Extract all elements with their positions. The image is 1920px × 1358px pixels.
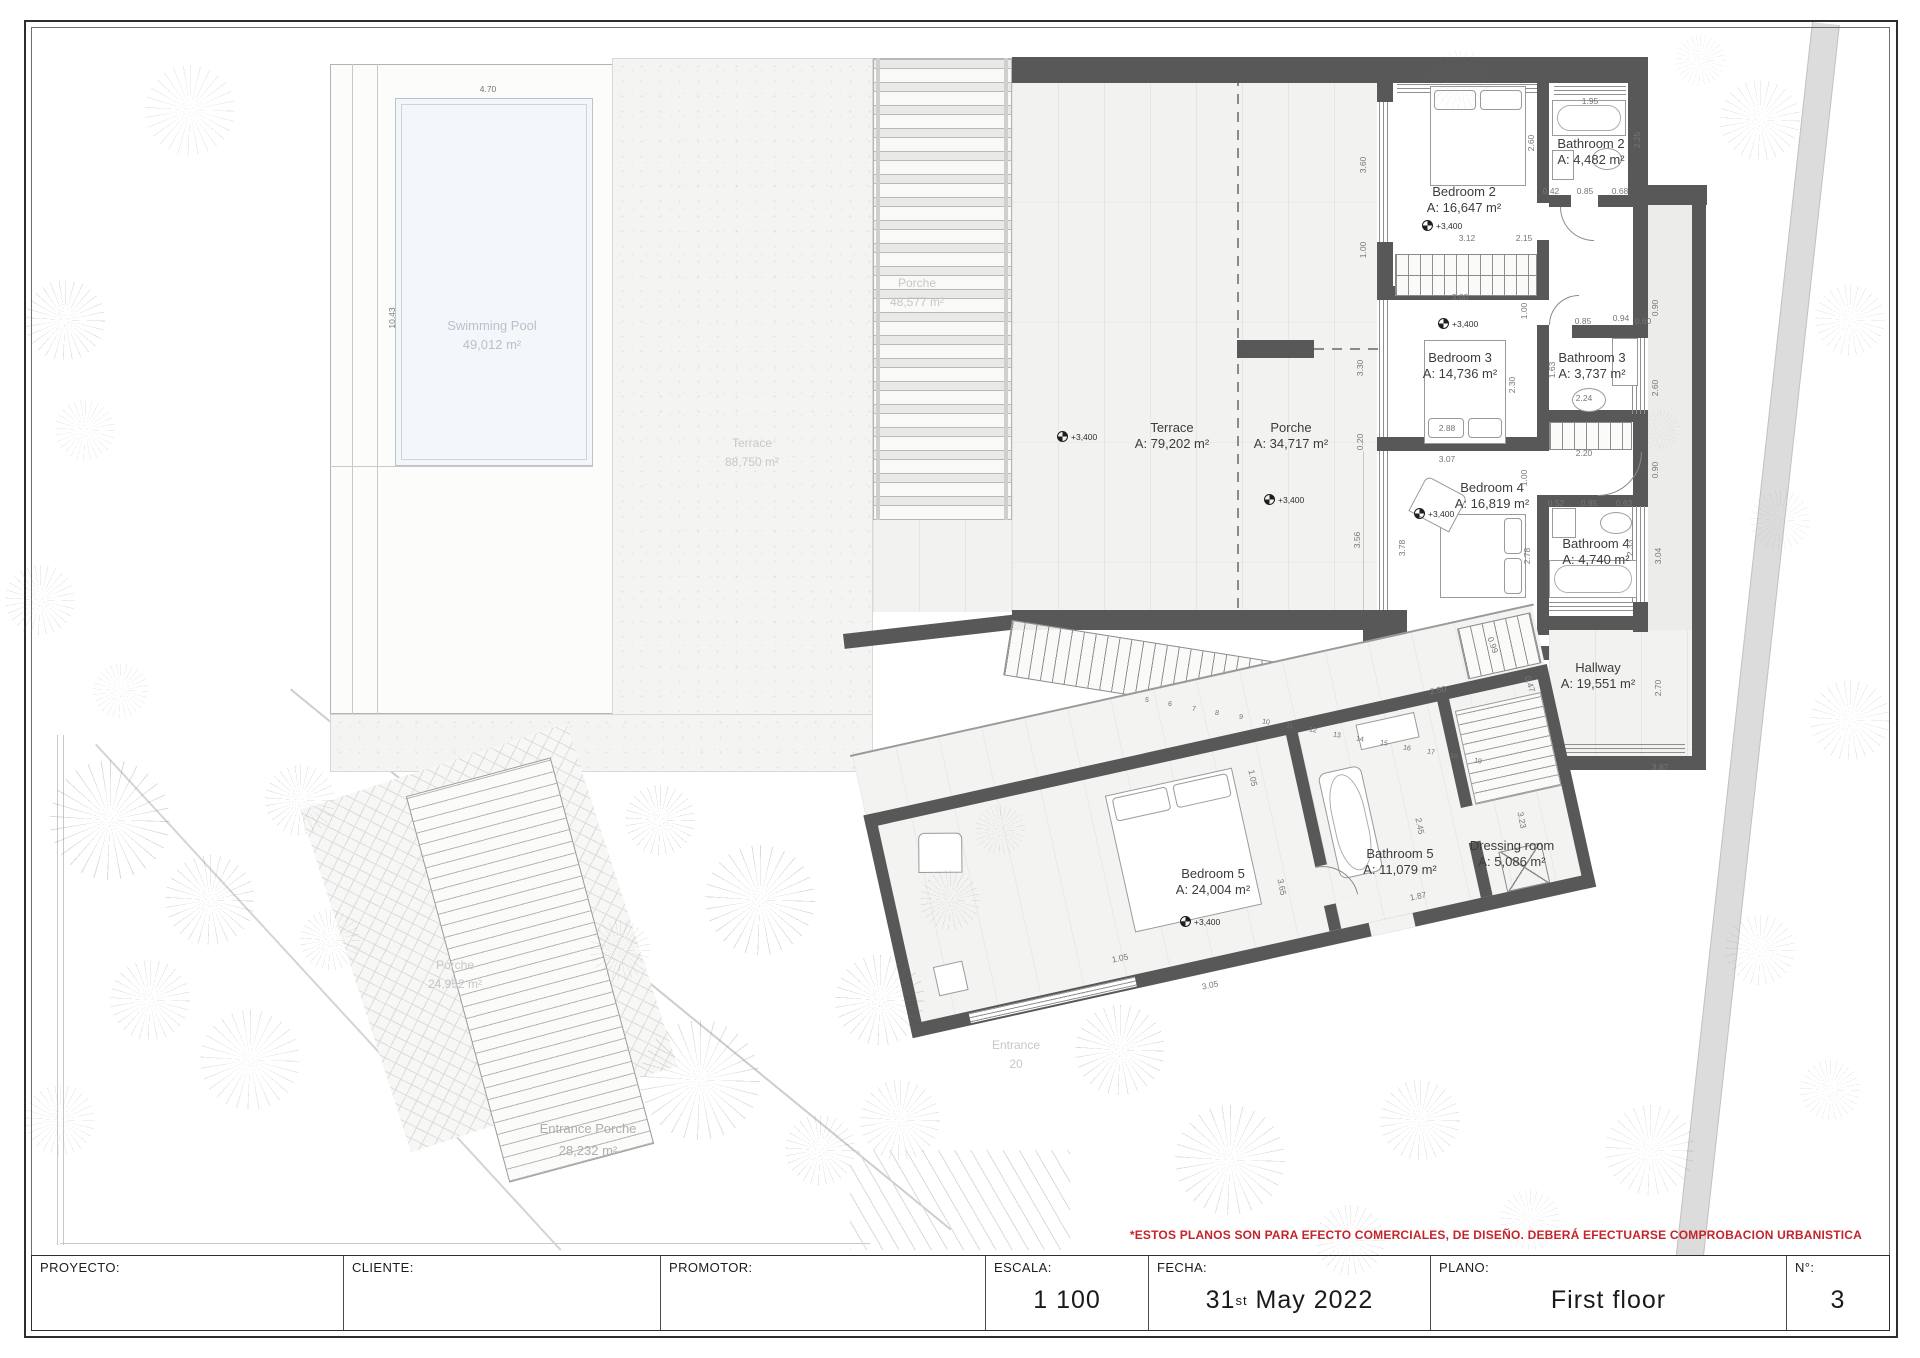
- dimension-label: 1.00: [1519, 303, 1529, 320]
- tree-icon: [110, 960, 190, 1040]
- tree-icon: [1720, 80, 1800, 160]
- tree-icon: [1675, 35, 1725, 85]
- room-label: Bathroom 3A: 3,737 m²: [1517, 350, 1667, 382]
- dimension-label: 0.20: [1355, 434, 1365, 451]
- dimension-label: 4.70: [480, 84, 497, 94]
- tree-icon: [50, 760, 170, 880]
- tree-icon: [1815, 285, 1885, 355]
- stair-number: 12: [1309, 726, 1318, 734]
- dimension-label: 3.30: [1355, 360, 1365, 377]
- level-marker: +3,400: [1057, 431, 1097, 442]
- dimension-label: 10.43: [387, 307, 397, 328]
- level-marker: +3,400: [1180, 916, 1220, 927]
- area-label-faint: Entrance20: [931, 1036, 1101, 1074]
- dimension-label: 2.30: [1507, 377, 1517, 394]
- dimension-label: 0.42: [1543, 186, 1560, 196]
- plano-label: PLANO:: [1439, 1260, 1778, 1275]
- dimension-label: 2.20: [1576, 448, 1593, 458]
- titleblock-promotor: PROMOTOR:: [661, 1256, 986, 1330]
- tree-icon: [1800, 1060, 1860, 1120]
- titleblock-escala: ESCALA: 1 100: [986, 1256, 1149, 1330]
- fecha-label: FECHA:: [1157, 1260, 1422, 1275]
- tree-icon: [1315, 1205, 1385, 1275]
- tree-icon: [25, 280, 105, 360]
- dimension-label: 0.94: [1613, 313, 1630, 323]
- level-marker: +3,400: [1264, 494, 1304, 505]
- tree-icon: [1750, 490, 1810, 550]
- tree-icon: [200, 1010, 300, 1110]
- dimension-label: 3.04: [1653, 548, 1663, 565]
- stair-number: 13: [1333, 731, 1342, 739]
- title-block: PROYECTO: CLIENTE: PROMOTOR: ESCALA: 1 1…: [31, 1255, 1890, 1331]
- tree-icon: [705, 845, 815, 955]
- stair-number: 10: [1262, 718, 1271, 726]
- tree-icon: [1640, 410, 1680, 450]
- stair-number: 16: [1403, 744, 1412, 752]
- dimension-label: 2.60: [1526, 135, 1536, 152]
- tree-icon: [165, 855, 255, 945]
- titleblock-proyecto: PROYECTO:: [32, 1256, 344, 1330]
- tree-icon: [920, 870, 980, 930]
- cliente-label: CLIENTE:: [352, 1260, 652, 1275]
- level-marker: +3,400: [1422, 220, 1462, 231]
- tree-icon: [25, 1085, 95, 1155]
- dimension-label: 0.90: [1650, 300, 1660, 317]
- dimension-label: 1.00: [1519, 470, 1529, 487]
- tree-icon: [1175, 1105, 1285, 1215]
- area-label-faint: Entrance Porche28,232 m²: [503, 1118, 673, 1162]
- room-label: Bathroom 4A: 4,740 m²: [1521, 536, 1671, 568]
- tree-icon: [1810, 680, 1890, 760]
- tree-icon: [975, 805, 1025, 855]
- dimension-label: 2.70: [1653, 680, 1663, 697]
- disclaimer-text: *ESTOS PLANOS SON PARA EFECTO COMERCIALE…: [0, 1228, 1862, 1242]
- tree-icon: [1430, 50, 1490, 110]
- dimension-label: 1.00: [1358, 242, 1368, 259]
- dimension-label: 1.63: [1547, 362, 1557, 379]
- dimension-label: 0.85: [1577, 186, 1594, 196]
- titleblock-numero: N°: 3: [1787, 1256, 1889, 1330]
- tree-icon: [860, 1080, 940, 1160]
- tree-icon: [590, 920, 650, 980]
- dimension-label: 3.12: [1459, 233, 1476, 243]
- stair-number: 19: [1474, 757, 1483, 765]
- tree-icon: [93, 663, 148, 718]
- dimension-label: 3.87: [1652, 762, 1669, 772]
- dimension-label: 2.25: [1632, 132, 1642, 149]
- numero-value: 3: [1795, 1275, 1881, 1326]
- dimension-label: 3.07: [1439, 454, 1456, 464]
- dimension-label: 0.85: [1581, 498, 1598, 508]
- room-label: Dressing roomA: 5,086 m²: [1437, 838, 1587, 870]
- plano-value: First floor: [1439, 1275, 1778, 1326]
- tree-icon: [1500, 1190, 1560, 1250]
- level-target-icon: [1057, 431, 1068, 442]
- room-label: Bedroom 5A: 24,004 m²: [1138, 866, 1288, 898]
- room-label: Bathroom 2A: 4,482 m²: [1516, 136, 1666, 168]
- dimension-label: 2.24: [1576, 393, 1593, 403]
- drawing-sheet: *ESTOS PLANOS SON PARA EFECTO COMERCIALE…: [0, 0, 1920, 1358]
- level-target-icon: [1438, 318, 1449, 329]
- dimension-label: 3.60: [1358, 157, 1368, 174]
- room-label: PorcheA: 34,717 m²: [1216, 420, 1366, 452]
- stair-number: 18: [1450, 752, 1459, 760]
- titleblock-fecha: FECHA: 31st May 2022: [1149, 1256, 1431, 1330]
- room-label: HallwayA: 19,551 m²: [1523, 660, 1673, 692]
- titleblock-cliente: CLIENTE:: [344, 1256, 661, 1330]
- escala-label: ESCALA:: [994, 1260, 1140, 1275]
- level-target-icon: [1414, 508, 1425, 519]
- numero-label: N°:: [1795, 1260, 1881, 1275]
- proyecto-label: PROYECTO:: [40, 1260, 335, 1275]
- dimension-label: 2.88: [1439, 423, 1456, 433]
- dimension-label: 3.00: [1452, 292, 1469, 302]
- dimension-label: 0.60: [1635, 316, 1652, 326]
- tree-icon: [625, 785, 695, 855]
- stair-number: 11: [1285, 722, 1293, 730]
- dimension-label: 0.63: [1616, 498, 1633, 508]
- area-label-faint: Porche24,952 m²: [370, 956, 540, 994]
- tree-icon: [1605, 1105, 1695, 1195]
- tree-icon: [5, 565, 75, 635]
- tree-icon: [785, 1115, 855, 1185]
- stair-number: 14: [1356, 735, 1365, 743]
- dimension-label: 0.85: [1575, 316, 1592, 326]
- tree-icon: [300, 910, 360, 970]
- tree-icon: [1380, 1080, 1460, 1160]
- dimension-label: 2.78: [1522, 548, 1532, 565]
- dimension-label: 1.95: [1582, 96, 1599, 106]
- promotor-label: PROMOTOR:: [669, 1260, 977, 1275]
- dimension-label: 2.60: [1650, 380, 1660, 397]
- dimension-label: 0.52: [1548, 498, 1565, 508]
- level-target-icon: [1180, 916, 1191, 927]
- tree-icon: [835, 955, 925, 1045]
- dimension-label: 0.90: [1650, 462, 1660, 479]
- area-label-faint: Porche48,577 m²: [832, 274, 1002, 312]
- level-marker: +3,400: [1438, 318, 1478, 329]
- stair-number: 17: [1427, 748, 1436, 756]
- tree-icon: [1725, 915, 1795, 985]
- tree-icon: [265, 765, 335, 835]
- tree-icon: [55, 400, 115, 460]
- room-label: Bedroom 2A: 16,647 m²: [1389, 184, 1539, 216]
- titleblock-plano: PLANO: First floor: [1431, 1256, 1787, 1330]
- area-label-faint: Terrace88,750 m²: [667, 434, 837, 472]
- stair-number: 15: [1380, 739, 1389, 747]
- tree-icon: [145, 65, 235, 155]
- dimension-label: 2.33: [1625, 540, 1635, 557]
- area-label-faint: Swimming Pool49,012 m²: [407, 316, 577, 354]
- dimension-label: 0.68: [1612, 186, 1629, 196]
- level-marker: +3,400: [1414, 508, 1454, 519]
- dimension-label: 3.78: [1397, 540, 1407, 557]
- level-target-icon: [1422, 220, 1433, 231]
- fecha-value: 31st May 2022: [1157, 1275, 1422, 1326]
- level-target-icon: [1264, 494, 1275, 505]
- dimension-label: 3.56: [1352, 532, 1362, 549]
- dimension-label: 2.15: [1516, 233, 1533, 243]
- escala-value: 1 100: [994, 1275, 1140, 1326]
